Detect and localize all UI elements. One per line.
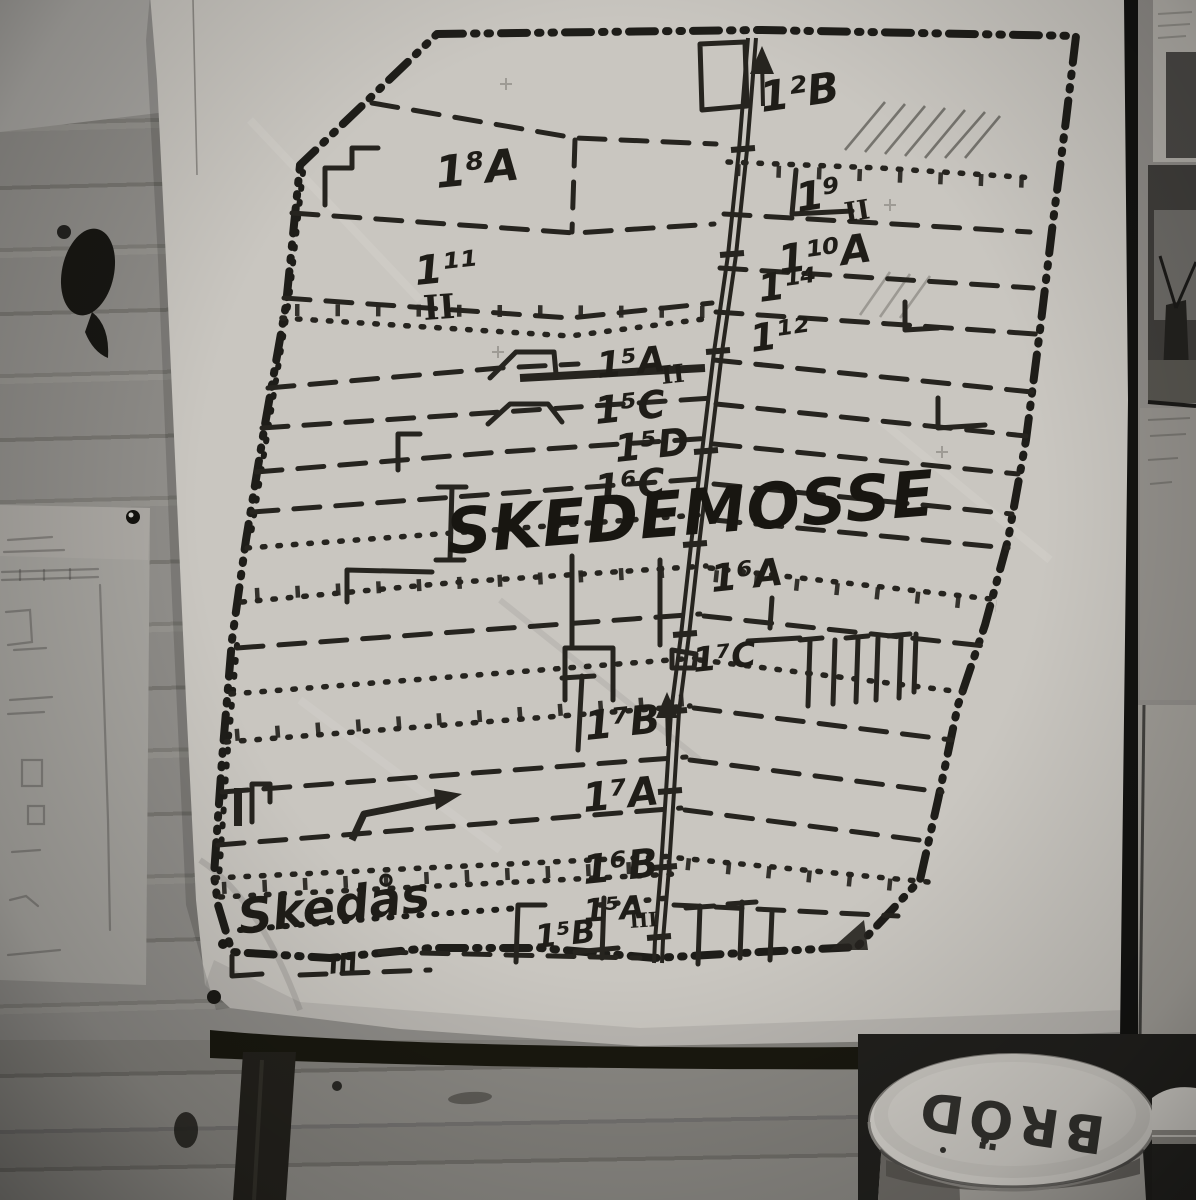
section-label: 1⁶A bbox=[708, 550, 785, 601]
structure-line bbox=[800, 638, 822, 640]
photo-ground bbox=[1148, 360, 1196, 403]
section-label: 1¹⁴ bbox=[755, 259, 820, 311]
ink-spot bbox=[207, 990, 221, 1004]
excavation-map: 1²B 1⁸A 1⁹ II 1¹⁰A 1¹¹ II 1¹⁴ 1¹² 1⁵A II… bbox=[146, 0, 1144, 1046]
knot bbox=[85, 312, 108, 358]
section-label: 1⁷C bbox=[691, 635, 758, 681]
section-label: 1¹² bbox=[747, 309, 813, 361]
section-label-sub: II bbox=[842, 194, 872, 229]
place-mark: III bbox=[327, 947, 360, 981]
structure-line bbox=[856, 639, 858, 702]
bread-tin: BRÖD bbox=[869, 1054, 1155, 1200]
structure-line bbox=[876, 638, 878, 700]
lower-board bbox=[1138, 705, 1196, 1040]
lid-dot bbox=[940, 1147, 946, 1153]
road-tick bbox=[720, 253, 744, 255]
road-tick bbox=[694, 450, 718, 452]
structure-line bbox=[562, 676, 594, 678]
section-label: 1⁵A bbox=[595, 339, 668, 387]
wall-knot bbox=[53, 224, 122, 358]
structure-line bbox=[914, 634, 916, 692]
section-label: 1⁷B bbox=[582, 696, 662, 750]
wall-knot-small bbox=[332, 1081, 342, 1091]
section-label: 1⁸A bbox=[433, 139, 522, 198]
structure-line bbox=[808, 641, 810, 706]
map-stand-leg bbox=[233, 1052, 296, 1200]
road-tick bbox=[673, 633, 697, 635]
structure-line bbox=[833, 640, 835, 704]
structure-line bbox=[748, 638, 800, 641]
road-tick bbox=[706, 350, 730, 352]
structure-line bbox=[698, 906, 700, 964]
wall-streak bbox=[448, 1090, 493, 1105]
section-label-sub: III bbox=[629, 907, 659, 933]
clipping-image bbox=[1166, 52, 1196, 158]
structure-line bbox=[770, 598, 772, 628]
scene: 1²B 1⁸A 1⁹ II 1¹⁰A 1¹¹ II 1¹⁴ 1¹² 1⁵A II… bbox=[0, 0, 1196, 1200]
section-label: 1⁵B bbox=[533, 912, 597, 956]
section-label-sub: II bbox=[422, 287, 457, 329]
windmill-photo bbox=[1148, 165, 1196, 406]
structure-line bbox=[899, 637, 901, 698]
section-label-sub: II bbox=[660, 359, 686, 390]
road-tick bbox=[658, 790, 682, 792]
structure-line bbox=[686, 906, 714, 908]
road-tick bbox=[647, 936, 671, 938]
knot bbox=[57, 225, 71, 239]
wall-knot-small bbox=[174, 1112, 198, 1148]
section-label: 1⁷A bbox=[580, 768, 661, 822]
pinned-sketch bbox=[0, 505, 150, 985]
structure-line bbox=[846, 636, 868, 638]
right-wall-items bbox=[1138, 0, 1196, 1060]
structure-line bbox=[728, 902, 756, 904]
thumbtack-highlight bbox=[129, 513, 134, 518]
structure-line bbox=[888, 634, 910, 636]
ink-spot bbox=[218, 939, 228, 949]
structure-line bbox=[740, 902, 742, 958]
section-label: 1⁹ bbox=[792, 169, 844, 222]
photograph: 1²B 1⁸A 1⁹ II 1¹⁰A 1¹¹ II 1¹⁴ 1¹² 1⁵A II… bbox=[0, 0, 1196, 1200]
section-label: 1⁶B bbox=[580, 840, 660, 894]
thumbtack bbox=[126, 510, 140, 524]
right-cylinder bbox=[1152, 1087, 1196, 1200]
lid-dot bbox=[981, 1136, 989, 1144]
road-tick bbox=[731, 148, 755, 150]
note-board bbox=[1140, 408, 1196, 700]
structure-line bbox=[770, 912, 772, 960]
